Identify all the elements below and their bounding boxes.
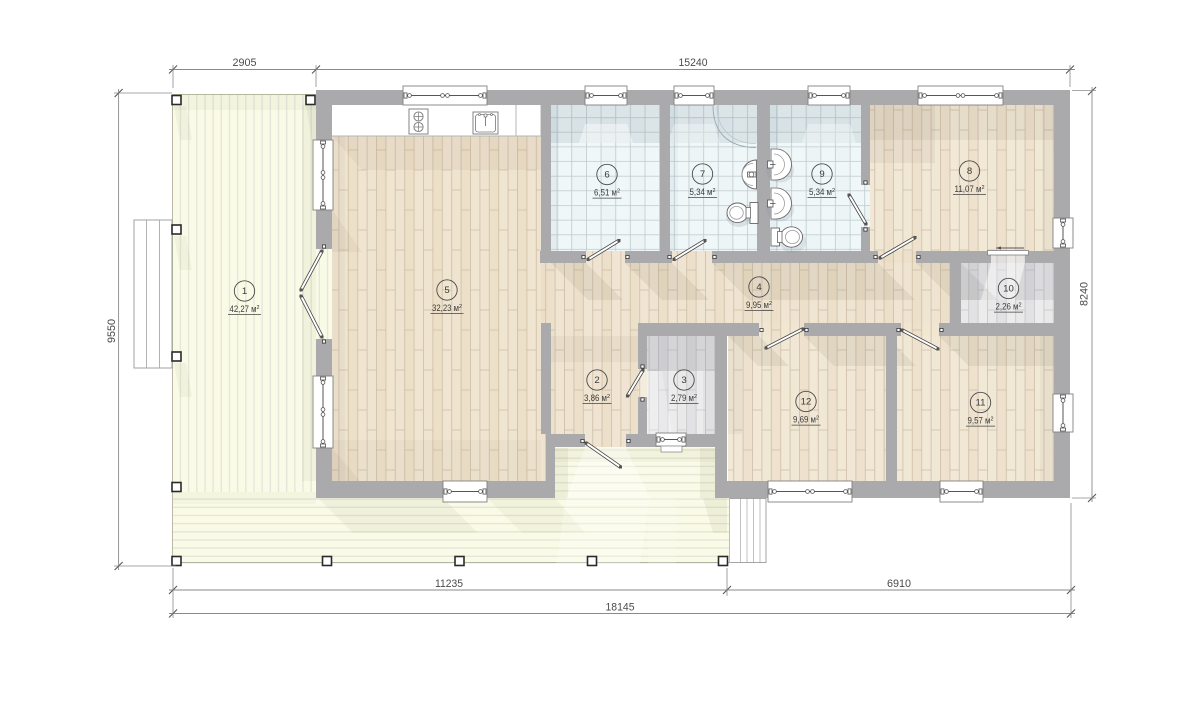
svg-text:3,86 м: 3,86 м [584, 393, 607, 403]
svg-text:1: 1 [242, 286, 247, 297]
svg-text:10: 10 [1003, 284, 1014, 295]
svg-text:8240: 8240 [1079, 282, 1091, 306]
svg-text:3: 3 [681, 375, 686, 386]
svg-text:9,57 м: 9,57 м [968, 416, 991, 426]
svg-text:2: 2 [713, 188, 716, 194]
svg-text:11: 11 [976, 398, 986, 409]
svg-text:11,07 м: 11,07 м [955, 184, 982, 194]
svg-text:6: 6 [604, 170, 609, 181]
svg-text:11235: 11235 [435, 578, 463, 590]
svg-text:7: 7 [700, 169, 705, 180]
svg-text:12: 12 [801, 397, 812, 408]
svg-text:4: 4 [756, 282, 762, 293]
svg-text:9,69 м: 9,69 м [793, 415, 816, 425]
svg-text:32,23 м: 32,23 м [432, 303, 459, 313]
svg-text:2: 2 [769, 301, 772, 307]
svg-text:2: 2 [832, 188, 835, 194]
svg-text:8: 8 [967, 166, 972, 177]
svg-text:2,79 м: 2,79 м [671, 393, 694, 403]
svg-text:2: 2 [991, 417, 994, 423]
svg-text:6910: 6910 [887, 578, 911, 590]
svg-text:2: 2 [594, 375, 599, 386]
svg-text:2: 2 [607, 394, 610, 400]
svg-text:2: 2 [1019, 303, 1022, 309]
svg-text:2: 2 [459, 304, 462, 310]
svg-text:2: 2 [694, 394, 697, 400]
svg-text:5,34 м: 5,34 м [809, 187, 832, 197]
svg-text:2: 2 [617, 189, 620, 195]
svg-text:5,34 м: 5,34 м [690, 187, 713, 197]
svg-text:9550: 9550 [106, 319, 118, 343]
svg-text:6,51 м: 6,51 м [594, 188, 617, 198]
svg-text:9: 9 [819, 169, 824, 180]
svg-text:9,95 м: 9,95 м [746, 300, 769, 310]
svg-text:2905: 2905 [233, 57, 257, 69]
svg-text:18145: 18145 [606, 602, 635, 614]
svg-text:42,27 м: 42,27 м [230, 304, 257, 314]
svg-text:2,26 м: 2,26 м [996, 302, 1019, 312]
svg-text:2: 2 [257, 305, 260, 311]
svg-text:2: 2 [816, 416, 819, 422]
svg-text:2: 2 [982, 185, 985, 191]
svg-text:5: 5 [444, 285, 449, 296]
svg-text:15240: 15240 [679, 57, 708, 69]
